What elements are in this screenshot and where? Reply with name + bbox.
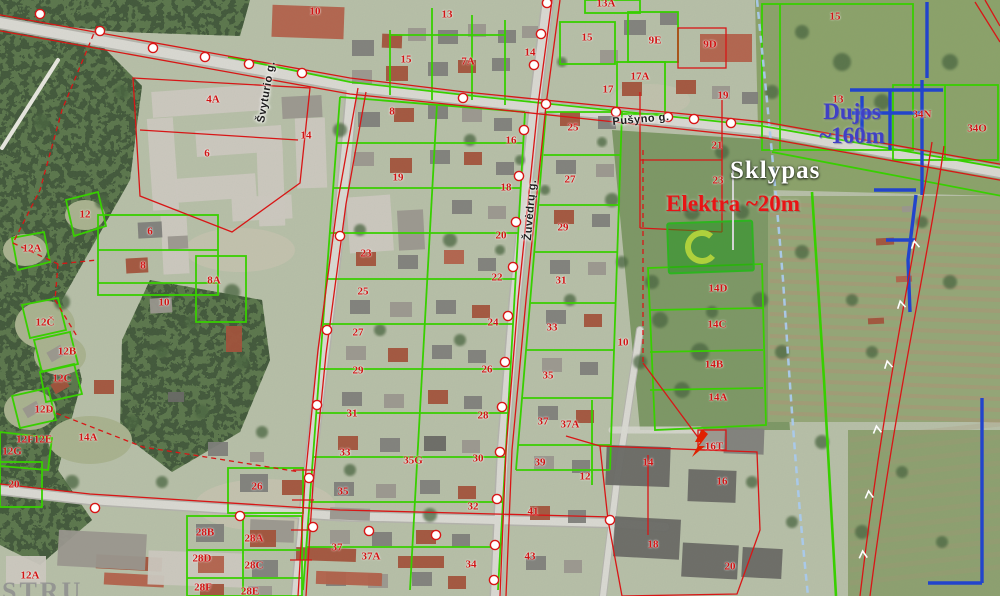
parcel-label: 33 bbox=[547, 323, 558, 334]
parcel-label: 10 bbox=[310, 7, 321, 18]
parcel-label: 37A bbox=[362, 552, 381, 563]
parcel-label: 16T bbox=[705, 442, 723, 453]
electricity-distance-callout: Elektra ~20m bbox=[666, 192, 800, 216]
street-name-label: Žuvėdrų g. bbox=[523, 179, 539, 241]
parcel-label: 12G bbox=[2, 447, 22, 458]
parcel-label: 41 bbox=[528, 507, 539, 518]
street-name-label: Švyturio g. bbox=[256, 60, 278, 123]
parcel-label: 19 bbox=[393, 173, 404, 184]
parcel-label: 6 bbox=[204, 149, 210, 160]
parcel-label: 12B bbox=[58, 347, 76, 358]
parcel-label: 12Č bbox=[36, 318, 55, 329]
parcel-label: 35 bbox=[338, 487, 349, 498]
parcel-label: 26 bbox=[252, 482, 263, 493]
parcel-label: 8 bbox=[140, 261, 146, 272]
parcel-label: 28 bbox=[478, 411, 489, 422]
parcel-label: 32 bbox=[468, 502, 479, 513]
parcel-label: 28C bbox=[245, 561, 264, 572]
parcel-label: 8 bbox=[389, 107, 395, 118]
parcel-label: 23 bbox=[361, 249, 372, 260]
parcel-label: 24 bbox=[488, 318, 499, 329]
parcel-label: 28F bbox=[194, 583, 212, 594]
parcel-label: 16 bbox=[506, 136, 517, 147]
parcel-label: 15 bbox=[830, 12, 841, 23]
parcel-label: 13A bbox=[597, 0, 616, 10]
map-labels-layer: 104A1461212A688A1012Č12B12C12D12F12E12G1… bbox=[0, 0, 1000, 596]
parcel-label: 26 bbox=[482, 365, 493, 376]
parcel-label: 17A bbox=[631, 72, 650, 83]
gas-callout-line1: Dujos bbox=[804, 100, 900, 124]
parcel-label: 34 bbox=[466, 560, 477, 571]
parcel-label: 35 bbox=[543, 371, 554, 382]
parcel-label: 33 bbox=[340, 448, 351, 459]
parcel-label: 39 bbox=[535, 458, 546, 469]
parcel-label: 12 bbox=[580, 472, 591, 483]
parcel-label: 13 bbox=[442, 10, 453, 21]
parcel-label: 14C bbox=[708, 320, 727, 331]
aerial-map-canvas[interactable]: 104A1461212A688A1012Č12B12C12D12F12E12G1… bbox=[0, 0, 1000, 596]
parcel-label: 43 bbox=[525, 552, 536, 563]
parcel-label: 27 bbox=[353, 328, 364, 339]
parcel-label: 34O bbox=[967, 124, 987, 135]
parcel-label: 22 bbox=[492, 273, 503, 284]
gas-callout-line2: ~160m bbox=[804, 124, 900, 148]
street-name-label: Pušyno g. bbox=[612, 112, 670, 128]
parcel-label: 28D bbox=[193, 554, 212, 565]
parcel-label: 12 bbox=[80, 210, 91, 221]
parcel-label: 37A bbox=[561, 420, 580, 431]
parcel-label: 20 bbox=[725, 562, 736, 573]
parcel-label: 18 bbox=[648, 540, 659, 551]
parcel-label: 34N bbox=[913, 110, 932, 121]
parcel-label: 8A bbox=[207, 276, 220, 287]
parcel-label: 14D bbox=[709, 284, 728, 295]
parcel-label: 12F bbox=[16, 435, 34, 446]
parcel-label: 30 bbox=[473, 454, 484, 465]
parcel-label: 28A bbox=[245, 534, 264, 545]
parcel-label: 19 bbox=[718, 91, 729, 102]
parcel-label: 31 bbox=[347, 409, 358, 420]
parcel-label: 10 bbox=[618, 338, 629, 349]
parcel-label: 17 bbox=[603, 85, 614, 96]
parcel-label: 28E bbox=[241, 587, 259, 596]
parcel-label: 7A bbox=[461, 57, 474, 68]
map-watermark: STRU bbox=[2, 577, 83, 596]
parcel-label: 14B bbox=[705, 360, 723, 371]
parcel-label: 16 bbox=[717, 477, 728, 488]
parcel-label: 25 bbox=[358, 287, 369, 298]
parcel-label: 20 bbox=[496, 231, 507, 242]
parcel-label: 4A bbox=[206, 95, 219, 106]
parcel-label: 25 bbox=[568, 123, 579, 134]
parcel-label: 14 bbox=[525, 48, 536, 59]
parcel-label: 23 bbox=[713, 176, 724, 187]
parcel-label: 15 bbox=[401, 55, 412, 66]
parcel-label: 9D bbox=[703, 40, 716, 51]
parcel-label: 14A bbox=[79, 433, 98, 444]
parcel-label: 29 bbox=[558, 223, 569, 234]
parcel-label: 12D bbox=[35, 405, 54, 416]
parcel-label: 31 bbox=[556, 276, 567, 287]
parcel-label: 14 bbox=[643, 458, 654, 469]
parcel-label: 6 bbox=[147, 227, 153, 238]
parcel-label: 29 bbox=[353, 366, 364, 377]
parcel-label: 14A bbox=[709, 393, 728, 404]
parcel-label: 14 bbox=[301, 131, 312, 142]
parcel-label: 37 bbox=[332, 543, 343, 554]
parcel-label: 37 bbox=[538, 417, 549, 428]
parcel-label: 12C bbox=[53, 374, 72, 385]
plot-callout: Sklypas bbox=[730, 158, 820, 184]
parcel-label: 20 bbox=[9, 480, 20, 491]
parcel-label: 9E bbox=[649, 36, 662, 47]
parcel-label: 27 bbox=[565, 175, 576, 186]
parcel-label: 28B bbox=[196, 528, 214, 539]
parcel-label: 12A bbox=[23, 244, 42, 255]
parcel-label: 12E bbox=[34, 435, 52, 446]
parcel-label: 18 bbox=[501, 183, 512, 194]
parcel-label: 21 bbox=[712, 141, 723, 152]
gas-distance-callout: Dujos ~160m bbox=[804, 100, 900, 148]
parcel-label: 15 bbox=[582, 33, 593, 44]
parcel-label: 35G bbox=[403, 456, 423, 467]
parcel-label: 10 bbox=[159, 298, 170, 309]
